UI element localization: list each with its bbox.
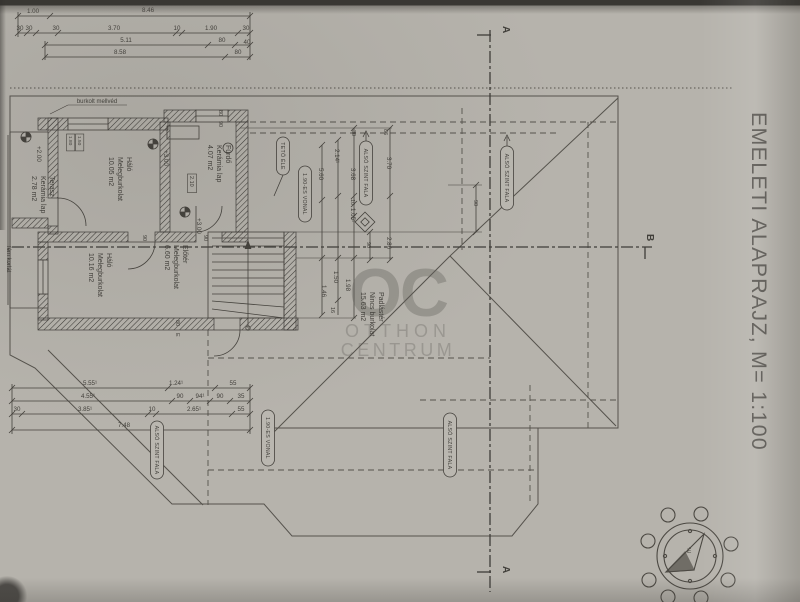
room-label: ElőtérMelegburkolat6.60 m2 [163, 245, 188, 289]
svg-text:94¹: 94¹ [196, 393, 205, 400]
room-label: TeraszKerámia lap2.78 m2 [30, 176, 55, 213]
svg-text:10: 10 [149, 406, 156, 413]
svg-text:80: 80 [174, 320, 180, 326]
svg-text:80: 80 [235, 49, 242, 56]
dim-label: 30 [26, 25, 33, 32]
dim-label: E [174, 333, 180, 337]
svg-text:ALSÓ SZINT FALA: ALSÓ SZINT FALA [362, 149, 369, 198]
svg-text:3.68: 3.68 [349, 168, 356, 181]
dim-label: 5.55¹ [83, 380, 97, 387]
svg-text:1.90-ES VONAL: 1.90-ES VONAL [264, 417, 270, 459]
dim-label: 2.65¹ [187, 406, 201, 413]
dim-label: 1.90 [205, 25, 218, 32]
svg-text:16: 16 [329, 307, 335, 313]
dim-label: 7.48 [118, 422, 131, 429]
dim-label: 1.24¹ [169, 380, 183, 387]
watermark-line1: OTTHON [345, 321, 451, 341]
svg-text:1.00: 1.00 [27, 8, 40, 15]
watermark-line2: CENTRUM [341, 340, 456, 360]
dim-label: 80 [217, 110, 223, 116]
svg-text:+3.00: +3.00 [195, 218, 202, 234]
dim-label: B [644, 234, 655, 241]
dim-label: 3.68 [349, 168, 356, 181]
north-arrow-icon [666, 534, 704, 572]
dim-label: 1.80 [67, 134, 75, 151]
roof-annotation-pill: TETŐ ÉLE [277, 137, 290, 175]
dim-label: 1.50 [332, 271, 339, 284]
room-label: HálóMelegburkolat10.05 m2 [107, 157, 132, 201]
dim-label: +3.00 [162, 150, 169, 166]
dim-label: 10 [349, 199, 355, 205]
room-label: FürdőKerámia lap4.07 m2 [206, 145, 231, 182]
dim-label: 35 [238, 393, 245, 400]
dim-label: 10 [174, 25, 181, 32]
svg-text:1.90: 1.90 [205, 25, 218, 32]
svg-text:ALSÓ SZINT FALA: ALSÓ SZINT FALA [503, 154, 510, 203]
svg-text:86: 86 [382, 129, 388, 135]
svg-text:3.70: 3.70 [385, 157, 392, 170]
svg-text:1.24¹: 1.24¹ [169, 380, 183, 387]
dim-label: 30 [14, 406, 21, 413]
dim-label: 5.60 [317, 168, 324, 181]
dim-label: 80 [174, 320, 180, 326]
svg-text:90: 90 [217, 121, 223, 127]
svg-text:1.05¹: 1.05¹ [349, 208, 356, 222]
dim-label: 8.58 [114, 49, 127, 56]
dim-label: 16 [329, 307, 335, 313]
dim-label: 94¹ [196, 393, 205, 400]
dim-label: A [500, 566, 511, 573]
compass-rose: É [641, 507, 738, 602]
dim-label: 90 [217, 393, 224, 400]
dim-label: 30 [17, 25, 24, 32]
svg-text:ALSÓ SZINT FALA: ALSÓ SZINT FALA [153, 426, 160, 475]
dim-label: 5.11 [120, 37, 132, 44]
dim-label: 86 [382, 129, 388, 135]
compass-north-label: É [687, 546, 692, 555]
dim-label: A [500, 26, 511, 33]
dim-label: 90 [202, 235, 208, 241]
dim-label: 1.50 [76, 134, 84, 151]
roof-annotation-pill: 1.90-ES VONAL [299, 166, 312, 222]
svg-text:4.55¹: 4.55¹ [81, 393, 95, 400]
roof-annotation-pill: ALSÓ SZINT FALA [151, 421, 164, 479]
svg-text:5.60: 5.60 [317, 168, 324, 181]
svg-text:2.65¹: 2.65¹ [187, 406, 201, 413]
dim-label: 1.05¹ [349, 208, 356, 222]
svg-text:B: B [644, 234, 655, 241]
svg-text:30: 30 [53, 25, 60, 32]
dim-label: +3.00 [195, 218, 202, 234]
svg-text:30: 30 [26, 25, 33, 32]
svg-text:A: A [500, 26, 511, 33]
svg-text:ALSÓ SZINT FALA: ALSÓ SZINT FALA [446, 421, 453, 470]
svg-text:1.50: 1.50 [76, 136, 82, 146]
roof-annotation-pill: ALSÓ SZINT FALA [360, 141, 373, 205]
svg-text:8.46: 8.46 [142, 7, 155, 14]
dim-label: 80 [219, 37, 226, 44]
svg-text:+3.00: +3.00 [162, 150, 169, 166]
svg-text:2.14¹: 2.14¹ [333, 149, 340, 163]
svg-text:1.80: 1.80 [67, 136, 73, 146]
svg-text:90: 90 [141, 235, 147, 241]
dim-label: 3.70 [108, 25, 121, 32]
svg-text:1.90-ES VONAL: 1.90-ES VONAL [301, 173, 307, 215]
floorplan-drawing: OC OTTHON CENTRUM EMELETI ALAPRAJZ, M= 1… [0, 0, 800, 602]
svg-text:fém korlát: fém korlát [5, 246, 11, 273]
dim-label: 30 [243, 25, 250, 32]
dim-label: 8.46 [142, 7, 155, 14]
dim-label: 3.85¹ [78, 406, 92, 413]
svg-text:2.10: 2.10 [188, 176, 194, 187]
svg-text:30: 30 [350, 130, 356, 136]
dim-label: 90 [177, 393, 184, 400]
svg-text:90: 90 [472, 200, 478, 206]
dim-label: 3.70 [385, 157, 392, 170]
svg-text:burkolt mellvéd: burkolt mellvéd [77, 99, 117, 105]
svg-text:E: E [174, 333, 180, 337]
svg-text:5.55¹: 5.55¹ [83, 380, 97, 387]
svg-text:1.50: 1.50 [332, 271, 339, 284]
room-label: HálóMelegburkolat10.16 m2 [87, 253, 112, 297]
svg-text:90: 90 [177, 393, 184, 400]
svg-text:+2.00: +2.00 [35, 146, 42, 162]
svg-text:A: A [500, 566, 511, 573]
dim-label: 90 [217, 121, 223, 127]
roof-annotation-pill: 1.90-ES VONAL [262, 410, 275, 466]
svg-text:3.70: 3.70 [108, 25, 121, 32]
svg-text:90: 90 [202, 235, 208, 241]
svg-text:55: 55 [230, 380, 237, 387]
svg-text:2.86: 2.86 [385, 237, 392, 250]
svg-text:40: 40 [244, 39, 251, 46]
dim-label: 55 [230, 380, 237, 387]
dim-label: 30 [53, 25, 60, 32]
dim-label: fém korlát [5, 246, 11, 273]
dim-label: 10 [149, 406, 156, 413]
dim-label: 80 [235, 49, 242, 56]
svg-text:5.11: 5.11 [120, 37, 132, 44]
svg-text:10: 10 [174, 25, 181, 32]
watermark: OC OTTHON CENTRUM [341, 255, 456, 360]
svg-text:35: 35 [238, 393, 245, 400]
svg-text:30: 30 [243, 25, 250, 32]
svg-text:1.98: 1.98 [344, 279, 351, 292]
svg-text:90: 90 [365, 242, 371, 248]
svg-text:10: 10 [349, 199, 355, 205]
dim-label: 2.86 [385, 237, 392, 250]
dim-label: 55 [238, 406, 245, 413]
svg-text:80: 80 [217, 110, 223, 116]
drawing-title: EMELETI ALAPRAJZ, M= 1:100 [747, 112, 771, 451]
dim-label: 90 [365, 242, 371, 248]
svg-text:30: 30 [17, 25, 24, 32]
dim-label: 40 [244, 39, 251, 46]
svg-text:55: 55 [238, 406, 245, 413]
dim-label: 2.10 [188, 174, 197, 193]
svg-text:8.58: 8.58 [114, 49, 127, 56]
dim-label: burkolt mellvéd [77, 99, 117, 105]
dim-label: 2.14¹ [333, 149, 340, 163]
dim-label: 90 [141, 235, 147, 241]
svg-text:TETŐ ÉLE: TETŐ ÉLE [279, 142, 286, 170]
dim-label: 90 [472, 200, 478, 206]
svg-text:3.85¹: 3.85¹ [78, 406, 92, 413]
dim-label: 1.00 [27, 8, 40, 15]
section-line-a [477, 30, 491, 592]
svg-text:7.48: 7.48 [118, 422, 131, 429]
photographed-floorplan: OC OTTHON CENTRUM EMELETI ALAPRAJZ, M= 1… [0, 0, 800, 602]
svg-text:1.46: 1.46 [320, 285, 327, 298]
dim-label: 30 [350, 130, 356, 136]
dim-label: 1.46 [320, 285, 327, 298]
svg-text:80: 80 [219, 37, 226, 44]
svg-text:90: 90 [217, 393, 224, 400]
dim-label: 1.98 [344, 279, 351, 292]
roof-annotation-pill: ALSÓ SZINT FALA [501, 146, 514, 210]
svg-text:30: 30 [14, 406, 21, 413]
dim-label: +2.00 [35, 146, 42, 162]
dim-label: 4.55¹ [81, 393, 95, 400]
roof-annotation-pill: ALSÓ SZINT FALA [444, 413, 457, 477]
